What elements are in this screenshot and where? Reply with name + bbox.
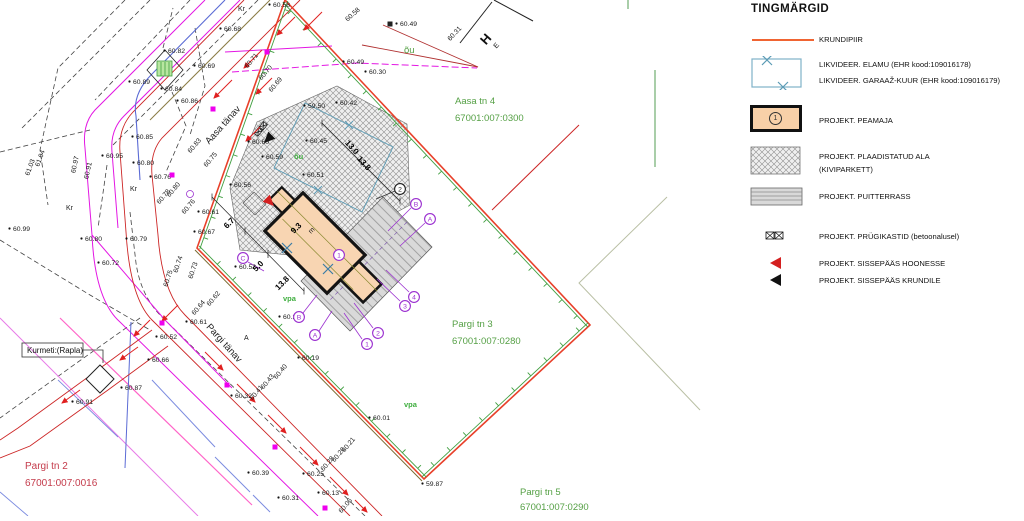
- legend-label: PROJEKT. PLAADISTATUD ALA: [819, 152, 930, 161]
- spot-dot: [234, 265, 236, 267]
- plan-label: 60.76: [154, 174, 171, 181]
- utility-marker: [265, 50, 270, 55]
- legend-label-group: LIKVIDEER. ELAMU (EHR kood:109016178) LI…: [819, 60, 1000, 92]
- plan-label: 60.60: [252, 139, 269, 146]
- spot-dot: [342, 60, 344, 62]
- circled-marker-label: B: [414, 201, 419, 208]
- circled-marker-label: 4: [412, 294, 416, 301]
- legend-row-sissepaas-krundile: PROJEKT. SISSEPÄÄS KRUNDILE: [745, 273, 1024, 289]
- circled-marker-label: 1: [365, 341, 369, 348]
- plan-label: vpa: [404, 400, 418, 409]
- legend-label: (KIVIPARKETT): [819, 165, 930, 174]
- spot-dot: [131, 135, 133, 137]
- legend-row-puitterrass: PROJEKT. PUITTERRASS: [745, 187, 1024, 209]
- spot-dot: [317, 491, 319, 493]
- entrance-building-icon: [768, 256, 784, 270]
- plan-label: 60.56: [234, 182, 251, 189]
- utility-marker-black: [388, 22, 393, 27]
- plan-label: õu: [294, 152, 304, 161]
- plan-label: 60.69: [198, 63, 215, 70]
- spot-dot: [229, 183, 231, 185]
- plan-label: 60.87: [125, 385, 142, 392]
- plan-label: 60.82: [168, 48, 185, 55]
- legend-row-likvideer: LIKVIDEER. ELAMU (EHR kood:109016178) LI…: [745, 56, 1024, 92]
- plan-label: 60.61: [202, 209, 219, 216]
- legend-title: TINGMÄRGID: [751, 3, 829, 15]
- terrace-pattern-icon: [750, 187, 804, 207]
- plan-label: 60.58: [273, 2, 290, 9]
- legend-label: LIKVIDEER. GARAAŽ-KUUR (EHR kood:1090161…: [819, 76, 1000, 85]
- plan-label: 60.45: [310, 138, 327, 145]
- spot-dot: [261, 155, 263, 157]
- legend-row-sissepaas-hoonesse: PROJEKT. SISSEPÄÄS HOONESSE: [745, 256, 1024, 272]
- waste-bins-icon: [765, 231, 805, 241]
- plan-label: 60.39: [252, 470, 269, 477]
- spot-dot: [71, 400, 73, 402]
- circled-marker-label: B: [297, 314, 302, 321]
- spot-dot: [302, 173, 304, 175]
- spot-dot: [147, 358, 149, 360]
- spot-dot: [193, 64, 195, 66]
- spot-dot: [125, 237, 127, 239]
- peamaja-swatch-icon: 1: [750, 105, 802, 132]
- legend-label: PROJEKT. PUITTERRASS: [819, 192, 911, 201]
- spot-dot: [101, 154, 103, 156]
- plan-label: 60.31: [282, 495, 299, 502]
- plan-label: Pargi tn 2: [25, 461, 68, 472]
- plan-label: 60.66: [152, 357, 169, 364]
- circled-marker-label: 1: [337, 252, 341, 259]
- plan-label: 60.49: [347, 59, 364, 66]
- plan-label: 60.95: [106, 153, 123, 160]
- plan-label: Kr: [66, 205, 74, 212]
- plan-label: 67001:007:0016: [25, 478, 98, 489]
- building-number-badge: 1: [769, 112, 782, 125]
- plan-label: 60.51: [307, 172, 324, 179]
- spot-dot: [335, 101, 337, 103]
- plan-label: 67001:007:0300: [455, 113, 524, 124]
- plan-label: Pargi tn 3: [452, 319, 493, 330]
- legend-row-plaadistatud: PROJEKT. PLAADISTATUD ALA (KIVIPARKETT): [745, 146, 1024, 178]
- spot-dot: [128, 80, 130, 82]
- legend-label: PROJEKT. PEAMAJA: [819, 116, 893, 125]
- spot-dot: [303, 104, 305, 106]
- plan-label: 59.50: [308, 103, 325, 110]
- spot-dot: [421, 482, 423, 484]
- krundipiir-line-icon: [750, 35, 816, 45]
- plan-label: 60.52: [160, 334, 177, 341]
- paving-pattern-icon: [750, 146, 802, 175]
- legend-panel: TINGMÄRGID KRUNDIPIIR LIKVIDEER. ELAMU (…: [745, 0, 1024, 516]
- circled-marker-label: A: [428, 216, 433, 223]
- spot-dot: [247, 471, 249, 473]
- utility-marker: [225, 383, 230, 388]
- spot-dot: [160, 87, 162, 89]
- spot-dot: [268, 3, 270, 5]
- plan-label: Kr: [130, 186, 138, 193]
- plan-label: 60.67: [198, 229, 215, 236]
- plan-label: 60.68: [224, 26, 241, 33]
- spot-dot: [163, 49, 165, 51]
- plan-label: 60.89: [133, 79, 150, 86]
- circled-marker-label: 3: [403, 303, 407, 310]
- plan-label: 60.01: [373, 415, 390, 422]
- plan-label: 60.80: [85, 236, 102, 243]
- plan-label: vpa: [283, 294, 297, 303]
- utility-marker: [160, 321, 165, 326]
- spot-dot: [247, 140, 249, 142]
- plan-label: Aasa tn 4: [455, 96, 495, 107]
- demolish-building-icon: [750, 56, 806, 90]
- spot-dot: [278, 315, 280, 317]
- spot-dot: [80, 237, 82, 239]
- plan-label: 60.13: [322, 490, 339, 497]
- spot-dot: [302, 472, 304, 474]
- spot-dot: [97, 261, 99, 263]
- legend-label: PROJEKT. SISSEPÄÄS KRUNDILE: [819, 276, 941, 285]
- plan-label: 60.49: [400, 21, 417, 28]
- spot-dot: [297, 356, 299, 358]
- legend-row-prygikastid: PROJEKT. PRÜGIKASTID (betoonalusel): [745, 231, 1024, 245]
- circled-marker-label: 2: [376, 330, 380, 337]
- spot-dot: [197, 210, 199, 212]
- spot-dot: [305, 139, 307, 141]
- legend-label: PROJEKT. SISSEPÄÄS HOONESSE: [819, 259, 945, 268]
- spot-dot: [230, 394, 232, 396]
- plan-label: 59.87: [426, 481, 443, 488]
- plan-label: 67001:007:0290: [520, 502, 589, 513]
- plan-label: 60.86: [181, 98, 198, 105]
- plan-label: 60.85: [136, 134, 153, 141]
- entrance-plot-icon: [768, 273, 784, 287]
- plan-label: 60.19: [302, 355, 319, 362]
- legend-label: LIKVIDEER. ELAMU (EHR kood:109016178): [819, 60, 1000, 69]
- plan-label: õu: [404, 45, 415, 56]
- spot-dot: [277, 496, 279, 498]
- spot-dot: [193, 230, 195, 232]
- plan-label: 60.80: [137, 160, 154, 167]
- spot-dot: [395, 22, 397, 24]
- plan-label: 60.59: [266, 154, 283, 161]
- circled-marker-label: C: [241, 255, 246, 262]
- plan-label: 60.84: [165, 86, 182, 93]
- spot-dot: [120, 386, 122, 388]
- spot-dot: [219, 27, 221, 29]
- plan-svg: 60.8260.6960.8960.8460.8660.6860.5860.58…: [0, 0, 745, 516]
- spot-dot: [176, 99, 178, 101]
- plan-label: 60.25: [307, 471, 324, 478]
- plan-label: 60.91: [76, 399, 93, 406]
- spot-dot: [8, 227, 10, 229]
- plan-label: 67001:007:0280: [452, 336, 521, 347]
- plan-label: A: [244, 335, 249, 342]
- spot-dot: [149, 175, 151, 177]
- circled-marker-label: A: [313, 332, 318, 339]
- plan-label: 60.30: [369, 69, 386, 76]
- plan-label: 60.61: [190, 319, 207, 326]
- legend-row-peamaja: 1 PROJEKT. PEAMAJA: [745, 105, 1024, 135]
- utility-marker: [211, 107, 216, 112]
- plan-drawing: 60.8260.6960.8960.8460.8660.6860.5860.58…: [0, 0, 745, 516]
- plan-label: Pargi tn 5: [520, 487, 561, 498]
- legend-label: KRUNDIPIIR: [819, 35, 863, 44]
- spot-dot: [132, 161, 134, 163]
- spot-dot: [155, 335, 157, 337]
- utility-marker: [323, 506, 328, 511]
- plan-label: Kurmeti:(Rapla): [27, 346, 83, 355]
- site-plan-page: 60.8260.6960.8960.8460.8660.6860.5860.58…: [0, 0, 1024, 516]
- utility-marker: [170, 173, 175, 178]
- spot-dot: [364, 70, 366, 72]
- plan-label: 60.72: [102, 260, 119, 267]
- spot-dot: [368, 416, 370, 418]
- circled-marker-label: 2: [398, 186, 402, 193]
- spot-dot: [185, 320, 187, 322]
- utility-marker: [273, 445, 278, 450]
- plan-label: 60.99: [13, 226, 30, 233]
- plan-label: 60.42: [340, 100, 357, 107]
- legend-label: PROJEKT. PRÜGIKASTID (betoonalusel): [819, 232, 959, 241]
- plan-label: 60.79: [130, 236, 147, 243]
- plan-label: Kr: [238, 6, 246, 13]
- legend-label-group: PROJEKT. PLAADISTATUD ALA (KIVIPARKETT): [819, 152, 930, 181]
